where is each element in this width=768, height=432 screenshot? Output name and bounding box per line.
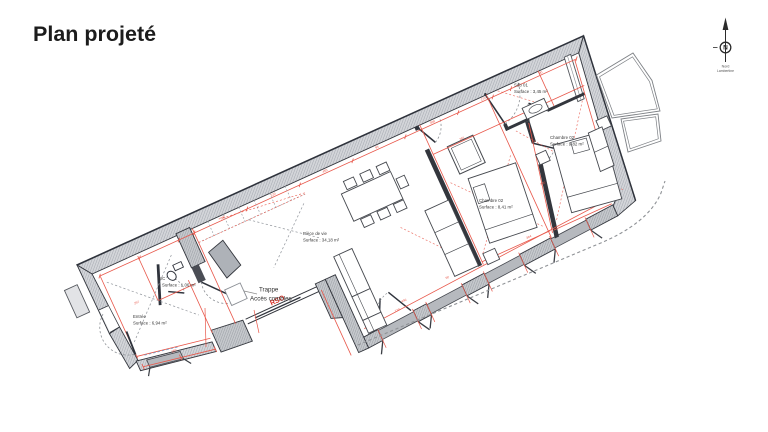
svg-text:Plan projeté: Plan projeté [33, 22, 156, 46]
svg-text:Lambertine: Lambertine [717, 69, 734, 73]
svg-text:Surface : 6,94 m²: Surface : 6,94 m² [133, 321, 167, 326]
svg-text:Trappe: Trappe [259, 287, 279, 294]
svg-text:Surface : 9,82 m²: Surface : 9,82 m² [550, 142, 584, 147]
svg-text:N: N [723, 45, 728, 52]
svg-text:Entrée: Entrée [133, 314, 146, 319]
svg-text:Pièce de vie: Pièce de vie [303, 231, 327, 236]
svg-text:Surface : 8,41 m²: Surface : 8,41 m² [479, 205, 513, 210]
svg-text:Accès combles: Accès combles [250, 296, 292, 303]
svg-text:Surface : 3,45 m²: Surface : 3,45 m² [514, 89, 548, 94]
svg-text:Chambre 02: Chambre 02 [479, 198, 504, 203]
svg-text:Chambre 02: Chambre 02 [550, 135, 575, 140]
svg-text:Surface : 1,06 m²: Surface : 1,06 m² [162, 283, 196, 288]
svg-text:Sdb 01: Sdb 01 [514, 83, 528, 88]
svg-text:Surface : 34,18 m²: Surface : 34,18 m² [303, 238, 340, 243]
svg-text:WC: WC [158, 276, 165, 281]
